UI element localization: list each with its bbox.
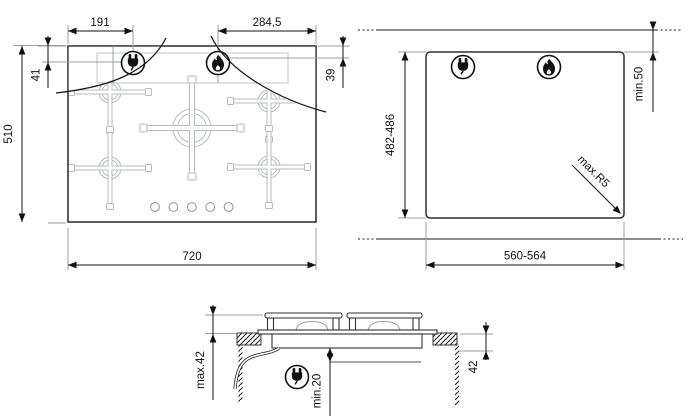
hob-installation-diagram: 191 284,5 510 720 41 39	[0, 0, 692, 416]
dim-hob-width: 720	[182, 251, 201, 263]
dim-plug-from-top: 41	[31, 69, 43, 82]
dim-clearance-below: min.20	[312, 374, 324, 409]
dim-hob-height: 510	[3, 124, 15, 143]
dim-cutout-width: 560-564	[504, 251, 547, 263]
dim-rear-clearance: min.50	[634, 67, 646, 102]
flame-icon-cutout	[538, 56, 561, 79]
dim-flame-from-top: 39	[326, 69, 338, 82]
diagram-svg: 191 284,5 510 720 41 39	[0, 0, 692, 416]
hob-body-section	[272, 334, 422, 348]
plug-icon-side	[286, 366, 309, 389]
dim-plug-from-left: 191	[90, 17, 109, 29]
plug-icon-cutout	[452, 56, 475, 79]
burner-caps	[296, 322, 400, 331]
dim-height-above-worktop: max.42	[195, 351, 207, 389]
cutout-view: 482-486 560-564 min.50 max.R5	[358, 22, 683, 271]
flame-icon	[207, 52, 230, 75]
cabinet-wall-right	[455, 345, 459, 405]
top-view: 191 284,5 510 720 41 39	[3, 17, 350, 270]
dim-cutout-height: 482-486	[385, 114, 397, 156]
cutout-rect	[426, 52, 624, 218]
side-view: max.42 min.20 42	[195, 305, 493, 416]
worktop-section-right	[433, 333, 457, 345]
dim-flame-from-right: 284,5	[253, 17, 282, 29]
worktop-section-left	[237, 333, 261, 345]
dim-recess-depth: 42	[468, 361, 480, 374]
hob-glass-section	[258, 330, 437, 334]
